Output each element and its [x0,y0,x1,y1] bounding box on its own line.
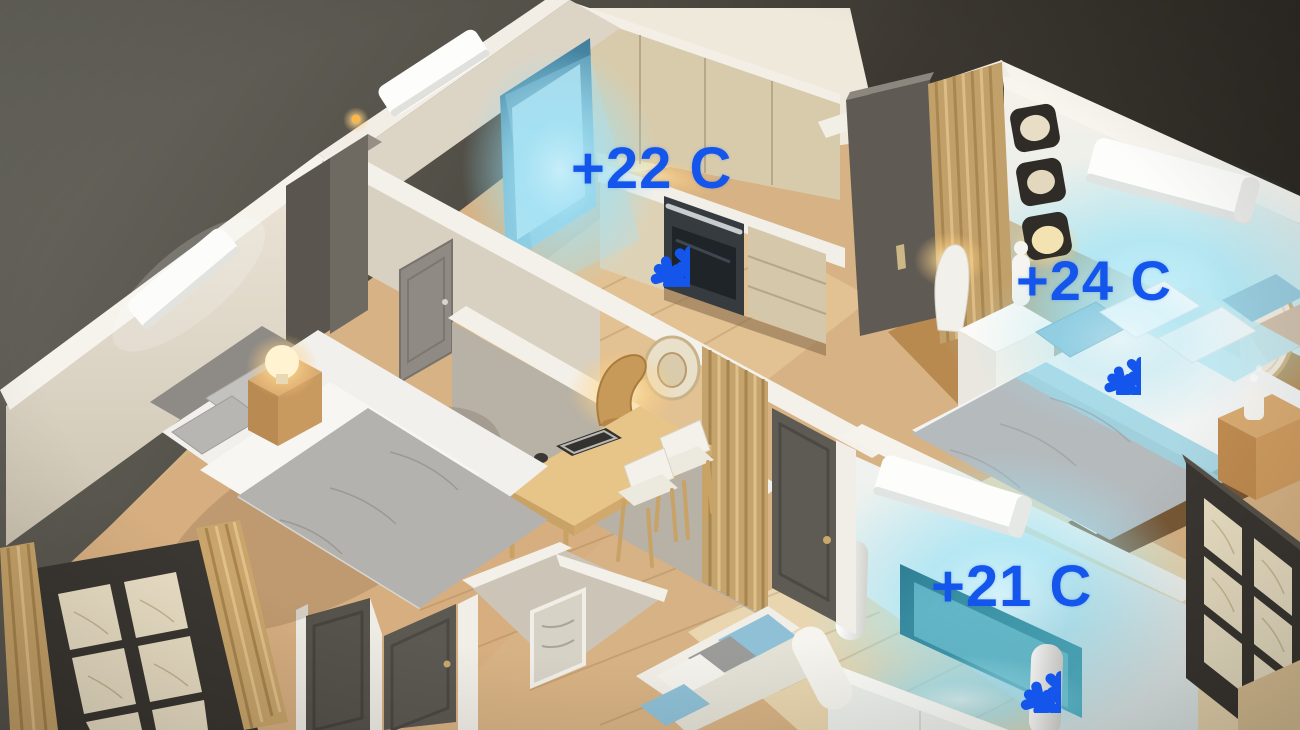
apartment-climate-illustration: +22 C +24 C +21 C [0,0,1300,730]
snowflake-icon [973,625,1061,713]
kitchen-temperature-label: +22 C [571,140,732,198]
snowflake-icon [604,201,690,287]
snowflake-icon [1061,315,1141,395]
living-room-temperature-label: +21 C [931,558,1092,616]
bedroom-temperature-label: +24 C [1016,253,1172,309]
